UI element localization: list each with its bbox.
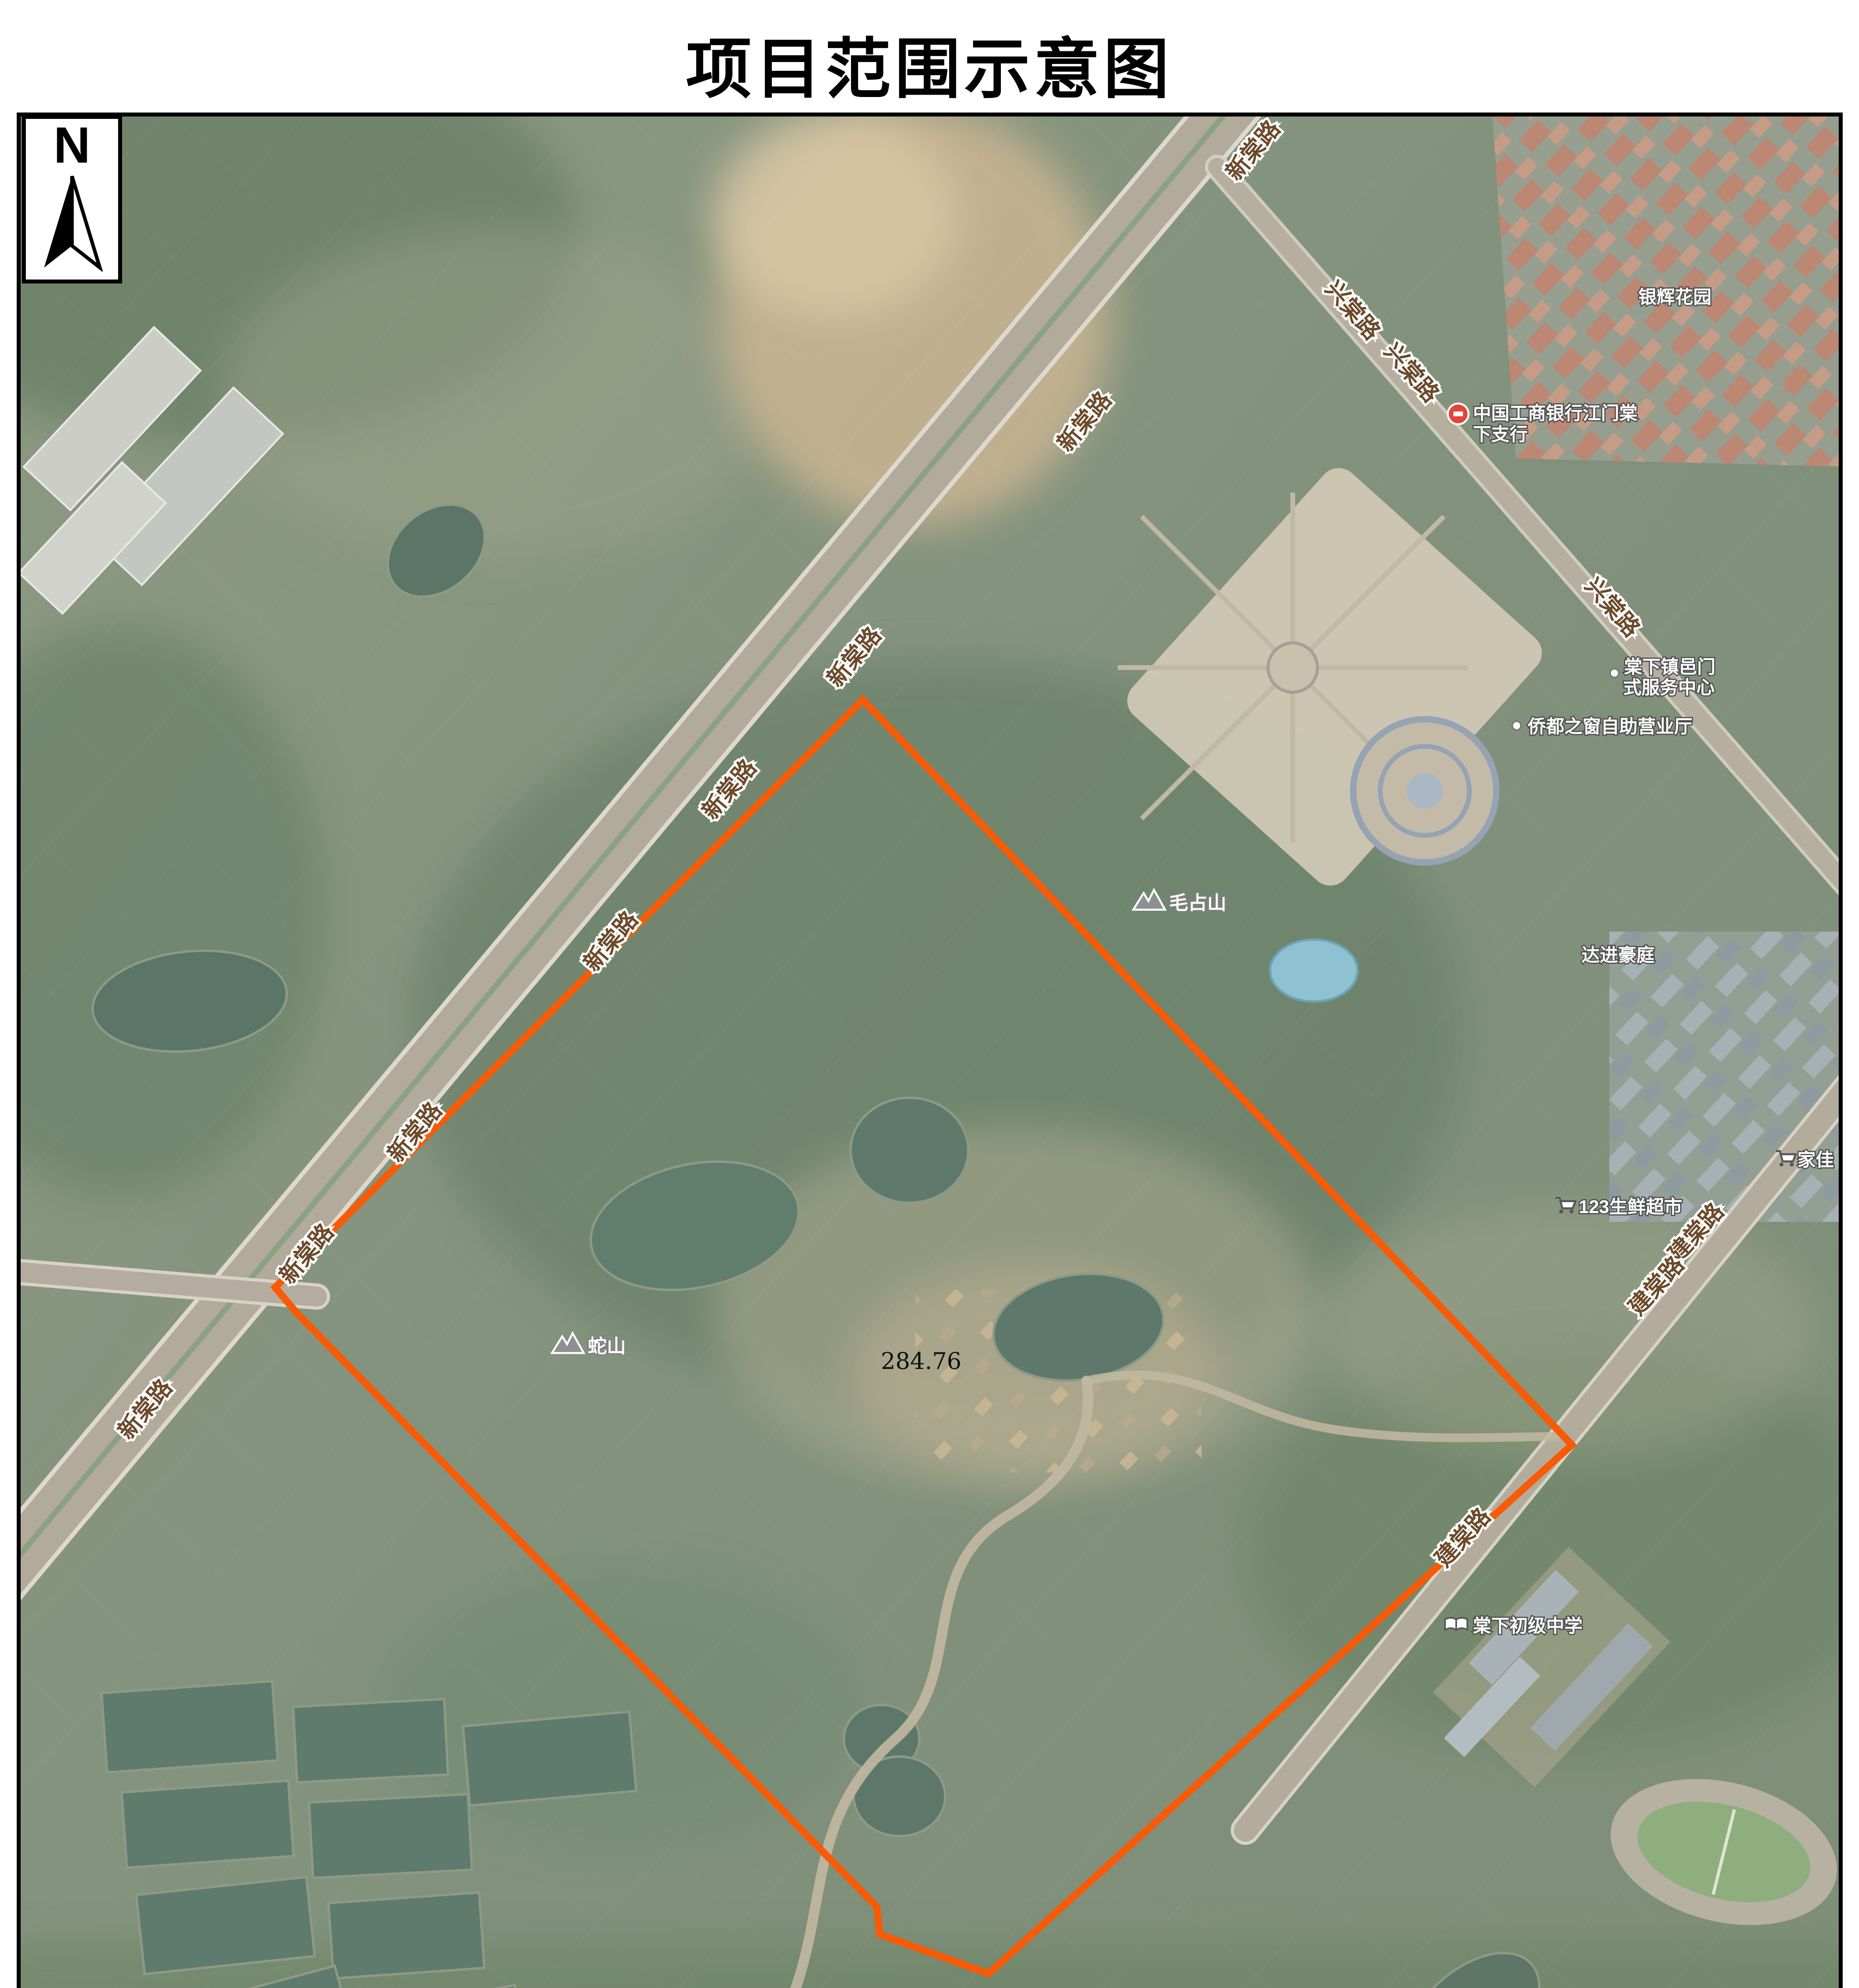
north-arrow-icon: [30, 172, 114, 272]
page-title: 项目范围示意图: [0, 16, 1859, 111]
poi-service-center-line1: 棠下镇邑门: [1624, 656, 1715, 677]
poi-bank-line1: 中国工商银行江门棠: [1473, 403, 1638, 423]
north-arrow-box: N: [22, 115, 122, 283]
poi-yinhui-garden: 银辉花园: [1638, 287, 1711, 307]
book-icon: [1445, 1618, 1467, 1630]
poi-dajin-haoting: 达进豪庭: [1581, 945, 1655, 965]
hill-she: 蛇山: [588, 1336, 626, 1357]
hill-maozhan: 毛占山: [1169, 893, 1226, 914]
bank-icon-glyph: [1453, 412, 1463, 416]
poi-dot-icon: [1610, 669, 1619, 678]
page: 项目范围示意图: [0, 0, 1859, 1988]
swimming-pool: [1270, 940, 1358, 1002]
poi-fresh-market: 123生鲜超市: [1579, 1196, 1682, 1217]
poi-middle-school: 棠下初级中学: [1473, 1615, 1583, 1636]
elevation-label: 284.76: [881, 1347, 962, 1375]
satellite-map: 新棠路 新棠路 新棠路 新棠路 新棠路 新棠路 新棠路 新棠路 兴棠路 兴棠路 …: [21, 116, 1839, 1988]
map-canvas: 新棠路 新棠路 新棠路 新棠路 新棠路 新棠路 新棠路 新棠路 兴棠路 兴棠路 …: [17, 113, 1843, 1988]
residential-right-mid: [1609, 932, 1839, 1222]
north-label: N: [26, 119, 118, 172]
poi-qiaodu-hall: 侨都之窗自助营业厅: [1527, 716, 1692, 737]
poi-bank-line2: 下支行: [1473, 424, 1528, 445]
poi-dot-icon: [1512, 721, 1521, 730]
poi-jiajia-market: 家佳: [1797, 1149, 1834, 1170]
poi-service-center-line2: 式服务中心: [1623, 677, 1715, 698]
